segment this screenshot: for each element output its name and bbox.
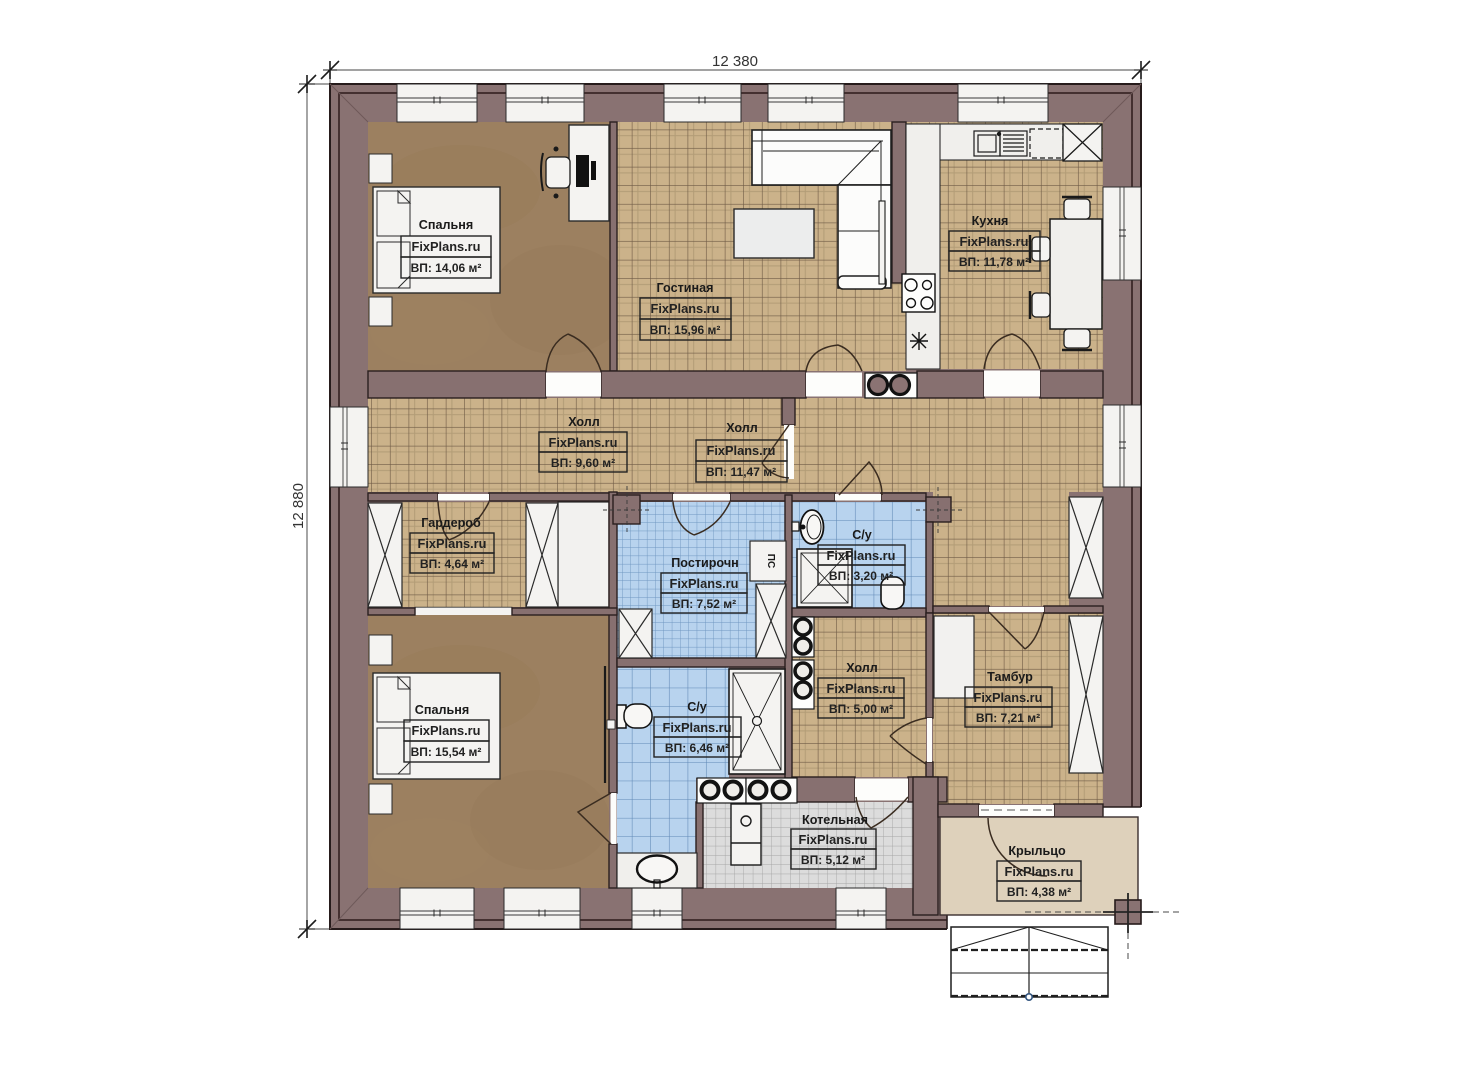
svg-text:ВП: 4,64 м²: ВП: 4,64 м² <box>420 557 484 571</box>
svg-text:FixPlans.ru: FixPlans.ru <box>651 301 720 316</box>
svg-text:FixPlans.ru: FixPlans.ru <box>799 832 868 847</box>
svg-text:12 380: 12 380 <box>712 53 758 70</box>
svg-text:ВП: 15,96 м²: ВП: 15,96 м² <box>650 323 721 337</box>
svg-text:Гардероб: Гардероб <box>421 516 481 530</box>
svg-text:ВП: 7,52 м²: ВП: 7,52 м² <box>672 597 736 611</box>
svg-text:Крыльцо: Крыльцо <box>1008 844 1066 858</box>
svg-text:Тамбур: Тамбур <box>987 670 1033 684</box>
svg-text:FixPlans.ru: FixPlans.ru <box>549 435 618 450</box>
svg-text:12 880: 12 880 <box>290 483 307 529</box>
svg-text:FixPlans.ru: FixPlans.ru <box>670 576 739 591</box>
svg-text:ВП: 3,20 м²: ВП: 3,20 м² <box>829 569 893 583</box>
svg-text:Холл: Холл <box>846 661 878 675</box>
svg-text:FixPlans.ru: FixPlans.ru <box>707 443 776 458</box>
svg-text:Котельная: Котельная <box>802 813 868 827</box>
svg-text:ВП: 5,00 м²: ВП: 5,00 м² <box>829 702 893 716</box>
svg-text:FixPlans.ru: FixPlans.ru <box>827 681 896 696</box>
svg-text:FixPlans.ru: FixPlans.ru <box>663 720 732 735</box>
svg-text:Спальня: Спальня <box>419 218 473 232</box>
svg-text:С/у: С/у <box>852 528 872 542</box>
svg-text:ВП: 6,46 м²: ВП: 6,46 м² <box>665 741 729 755</box>
svg-text:FixPlans.ru: FixPlans.ru <box>974 690 1043 705</box>
svg-text:ВП: 11,78 м²: ВП: 11,78 м² <box>959 255 1029 269</box>
svg-text:Постирочн: Постирочн <box>671 556 738 570</box>
svg-text:ВП: 15,54 м²: ВП: 15,54 м² <box>411 745 482 759</box>
svg-text:ВП: 7,21 м²: ВП: 7,21 м² <box>976 711 1040 725</box>
svg-text:FixPlans.ru: FixPlans.ru <box>827 548 896 563</box>
svg-text:Спальня: Спальня <box>415 703 469 717</box>
svg-text:ВП: 14,06 м²: ВП: 14,06 м² <box>411 261 482 275</box>
svg-text:ПС: ПС <box>765 554 776 568</box>
svg-text:Гостиная: Гостиная <box>657 281 714 295</box>
svg-text:FixPlans.ru: FixPlans.ru <box>412 239 481 254</box>
svg-text:ВП: 9,60 м²: ВП: 9,60 м² <box>551 456 615 470</box>
svg-text:FixPlans.ru: FixPlans.ru <box>960 234 1029 249</box>
svg-text:ВП: 5,12 м²: ВП: 5,12 м² <box>801 853 865 867</box>
svg-text:Кухня: Кухня <box>972 214 1009 228</box>
svg-text:ВП: 4,38 м²: ВП: 4,38 м² <box>1007 885 1071 899</box>
svg-text:FixPlans.ru: FixPlans.ru <box>418 536 487 551</box>
svg-text:ВП: 11,47 м²: ВП: 11,47 м² <box>706 465 776 479</box>
svg-text:Холл: Холл <box>568 415 600 429</box>
svg-text:FixPlans.ru: FixPlans.ru <box>1005 864 1074 879</box>
svg-text:Холл: Холл <box>726 421 758 435</box>
svg-text:С/у: С/у <box>687 700 707 714</box>
svg-text:FixPlans.ru: FixPlans.ru <box>412 723 481 738</box>
